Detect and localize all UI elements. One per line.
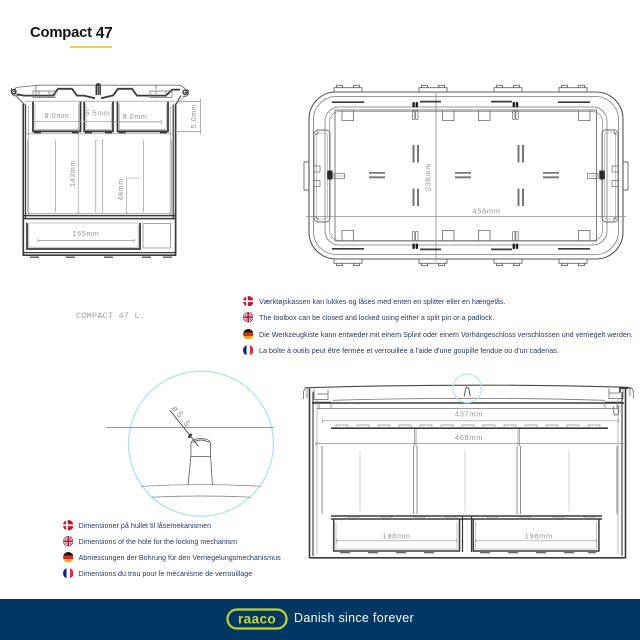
svg-text:198mm: 198mm (383, 531, 411, 540)
svg-text:165mm: 165mm (73, 231, 100, 238)
svg-text:198mm: 198mm (525, 531, 553, 540)
svg-text:143mm: 143mm (70, 160, 77, 187)
svg-text:8.0mm: 8.0mm (45, 113, 70, 120)
svg-text:238mm: 238mm (424, 163, 433, 191)
svg-text:5.0mm: 5.0mm (191, 104, 198, 129)
svg-text:468mm: 468mm (455, 433, 483, 442)
svg-text:5.5mm: 5.5mm (86, 110, 111, 117)
svg-text:raaco: raaco (238, 612, 276, 627)
svg-text:8.0mm: 8.0mm (123, 114, 148, 121)
svg-text:458mm: 458mm (472, 207, 500, 216)
svg-text:437mm: 437mm (455, 410, 483, 419)
svg-text:48mm: 48mm (118, 178, 125, 200)
